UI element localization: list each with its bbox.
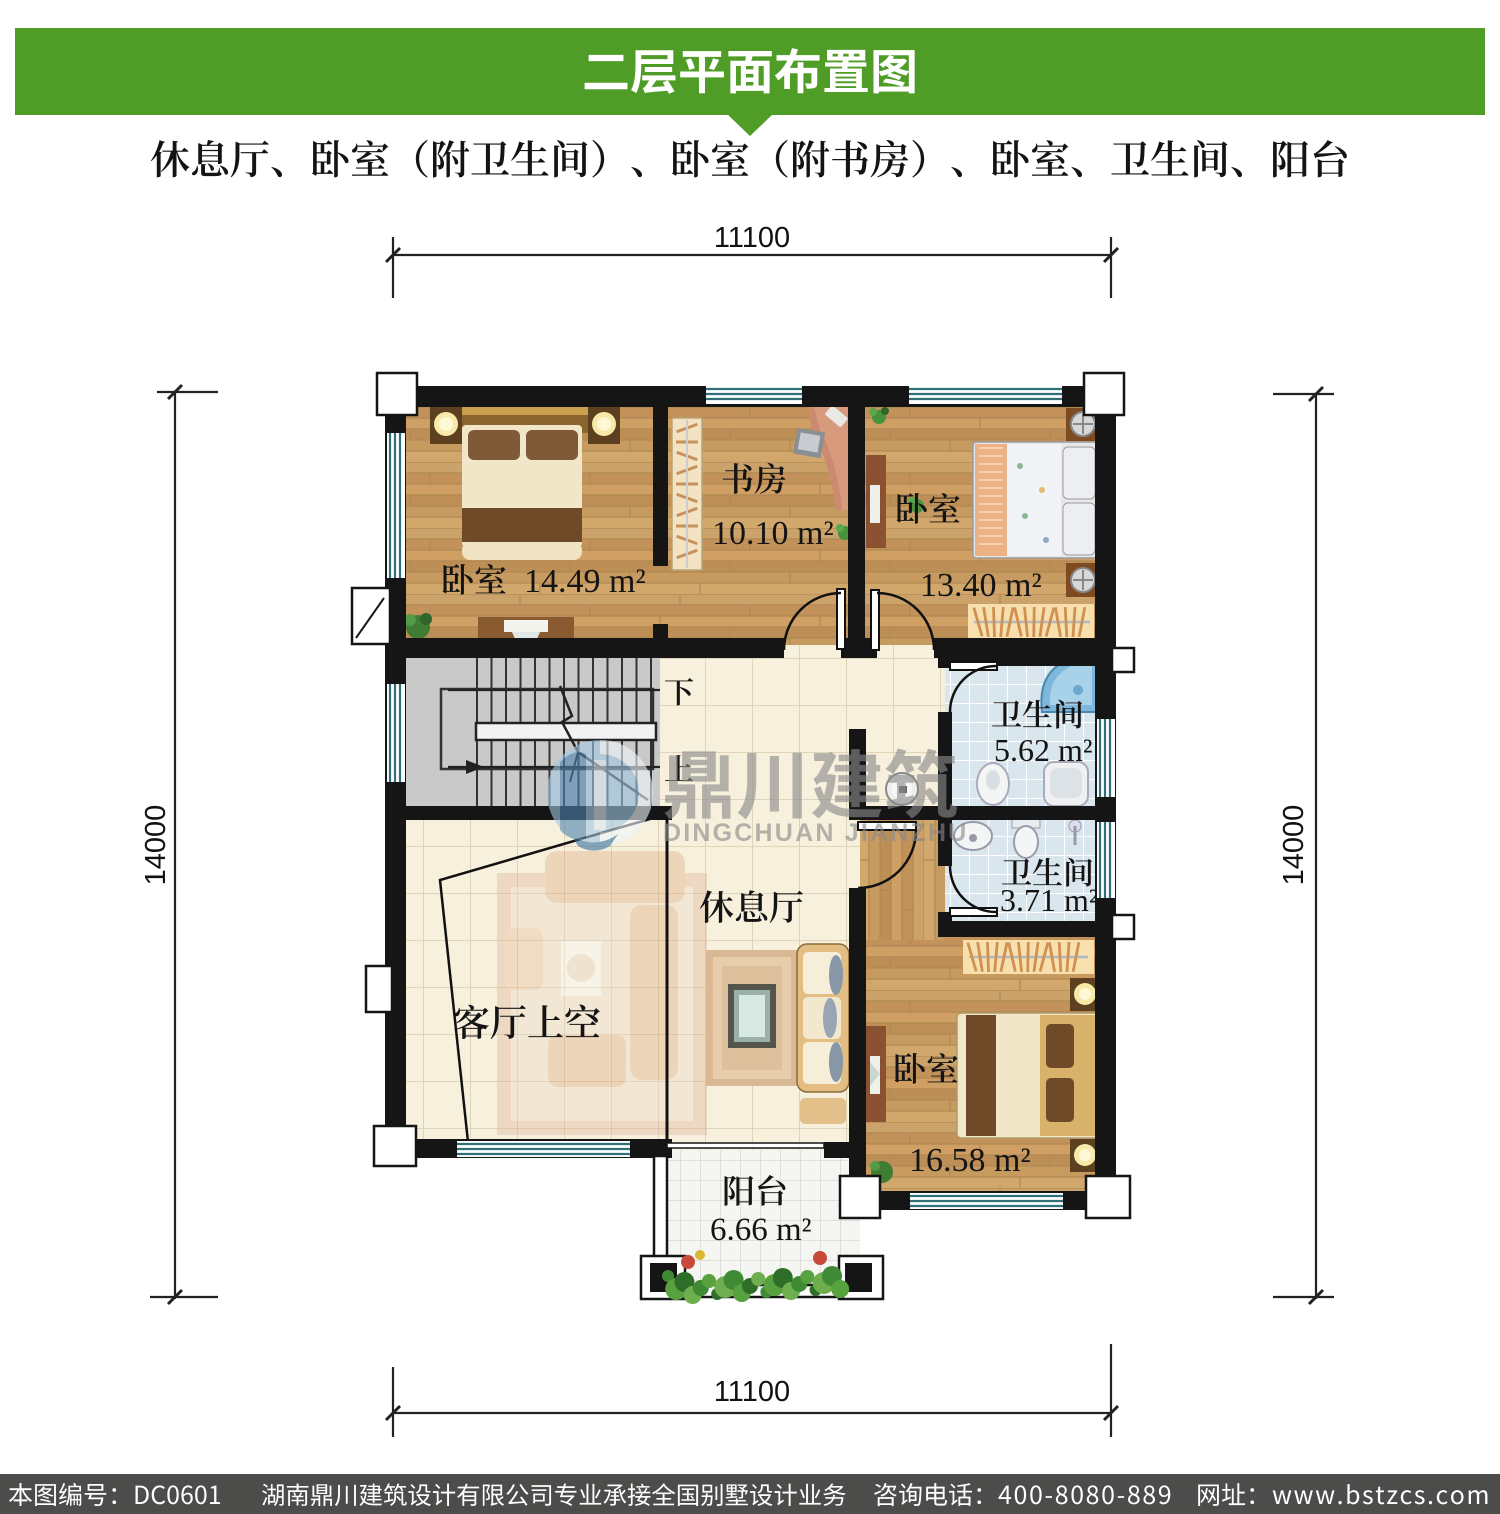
svg-text:14000: 14000 — [140, 805, 172, 886]
svg-text:5.62 m²: 5.62 m² — [994, 732, 1092, 768]
svg-text:DINGCHUAN JIANZHU: DINGCHUAN JIANZHU — [663, 819, 968, 847]
svg-text:11100: 11100 — [714, 222, 790, 254]
svg-text:6.66 m²: 6.66 m² — [710, 1212, 812, 1248]
svg-text:14.49 m²: 14.49 m² — [524, 563, 646, 600]
svg-text:3.71 m²: 3.71 m² — [1000, 882, 1098, 918]
svg-text:14000: 14000 — [1278, 805, 1310, 886]
svg-text:13.40 m²: 13.40 m² — [920, 567, 1042, 604]
svg-text:16.58 m²: 16.58 m² — [909, 1142, 1031, 1179]
svg-text:11100: 11100 — [714, 1376, 790, 1408]
svg-text:10.10 m²: 10.10 m² — [712, 515, 834, 552]
